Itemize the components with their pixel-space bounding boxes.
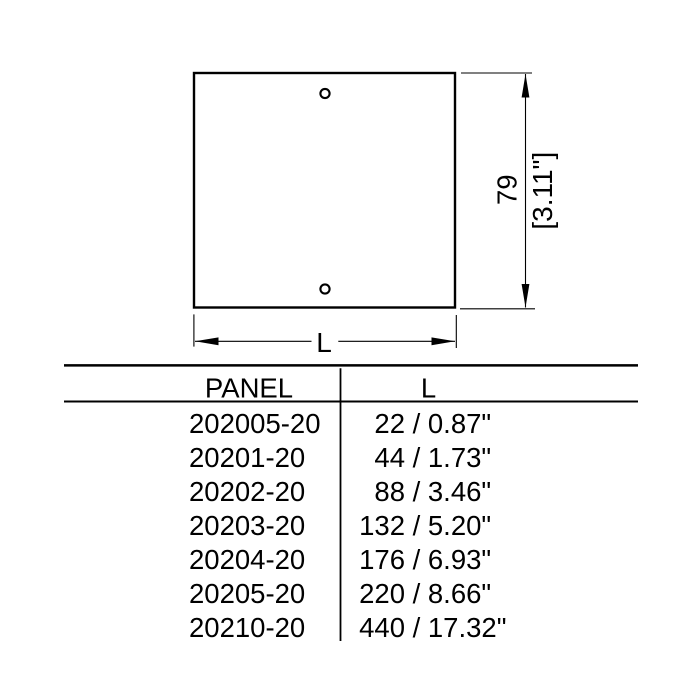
svg-text:L: L	[316, 327, 332, 358]
svg-text:0.87": 0.87"	[428, 408, 491, 439]
svg-text:6.93": 6.93"	[428, 544, 491, 575]
svg-text:/: /	[413, 544, 421, 575]
svg-text:[3.11"]: [3.11"]	[527, 152, 558, 230]
svg-text:8.66": 8.66"	[428, 578, 491, 609]
svg-text:L: L	[421, 373, 436, 404]
svg-text:20205-20: 20205-20	[189, 578, 305, 609]
svg-text:20201-20: 20201-20	[189, 442, 305, 473]
svg-text:79: 79	[492, 174, 523, 205]
svg-text:/: /	[413, 510, 421, 541]
svg-text:20210-20: 20210-20	[189, 612, 305, 643]
svg-text:132: 132	[359, 510, 405, 541]
svg-text:/: /	[413, 578, 421, 609]
svg-text:1.73": 1.73"	[428, 442, 491, 473]
svg-text:20202-20: 20202-20	[189, 476, 305, 507]
svg-text:/: /	[413, 408, 421, 439]
svg-text:176: 176	[359, 544, 405, 575]
svg-text:PANEL: PANEL	[205, 373, 293, 404]
svg-text:17.32": 17.32"	[428, 612, 507, 643]
svg-text:202005-20: 202005-20	[189, 408, 321, 439]
svg-text:44: 44	[374, 442, 405, 473]
svg-text:5.20": 5.20"	[428, 510, 491, 541]
svg-text:/: /	[413, 612, 421, 643]
svg-text:3.46": 3.46"	[428, 476, 491, 507]
svg-text:/: /	[413, 476, 421, 507]
svg-text:/: /	[413, 442, 421, 473]
svg-text:88: 88	[374, 476, 405, 507]
svg-text:220: 220	[359, 578, 405, 609]
svg-text:20203-20: 20203-20	[189, 510, 305, 541]
svg-text:22: 22	[374, 408, 405, 439]
svg-text:20204-20: 20204-20	[189, 544, 305, 575]
svg-text:440: 440	[359, 612, 405, 643]
